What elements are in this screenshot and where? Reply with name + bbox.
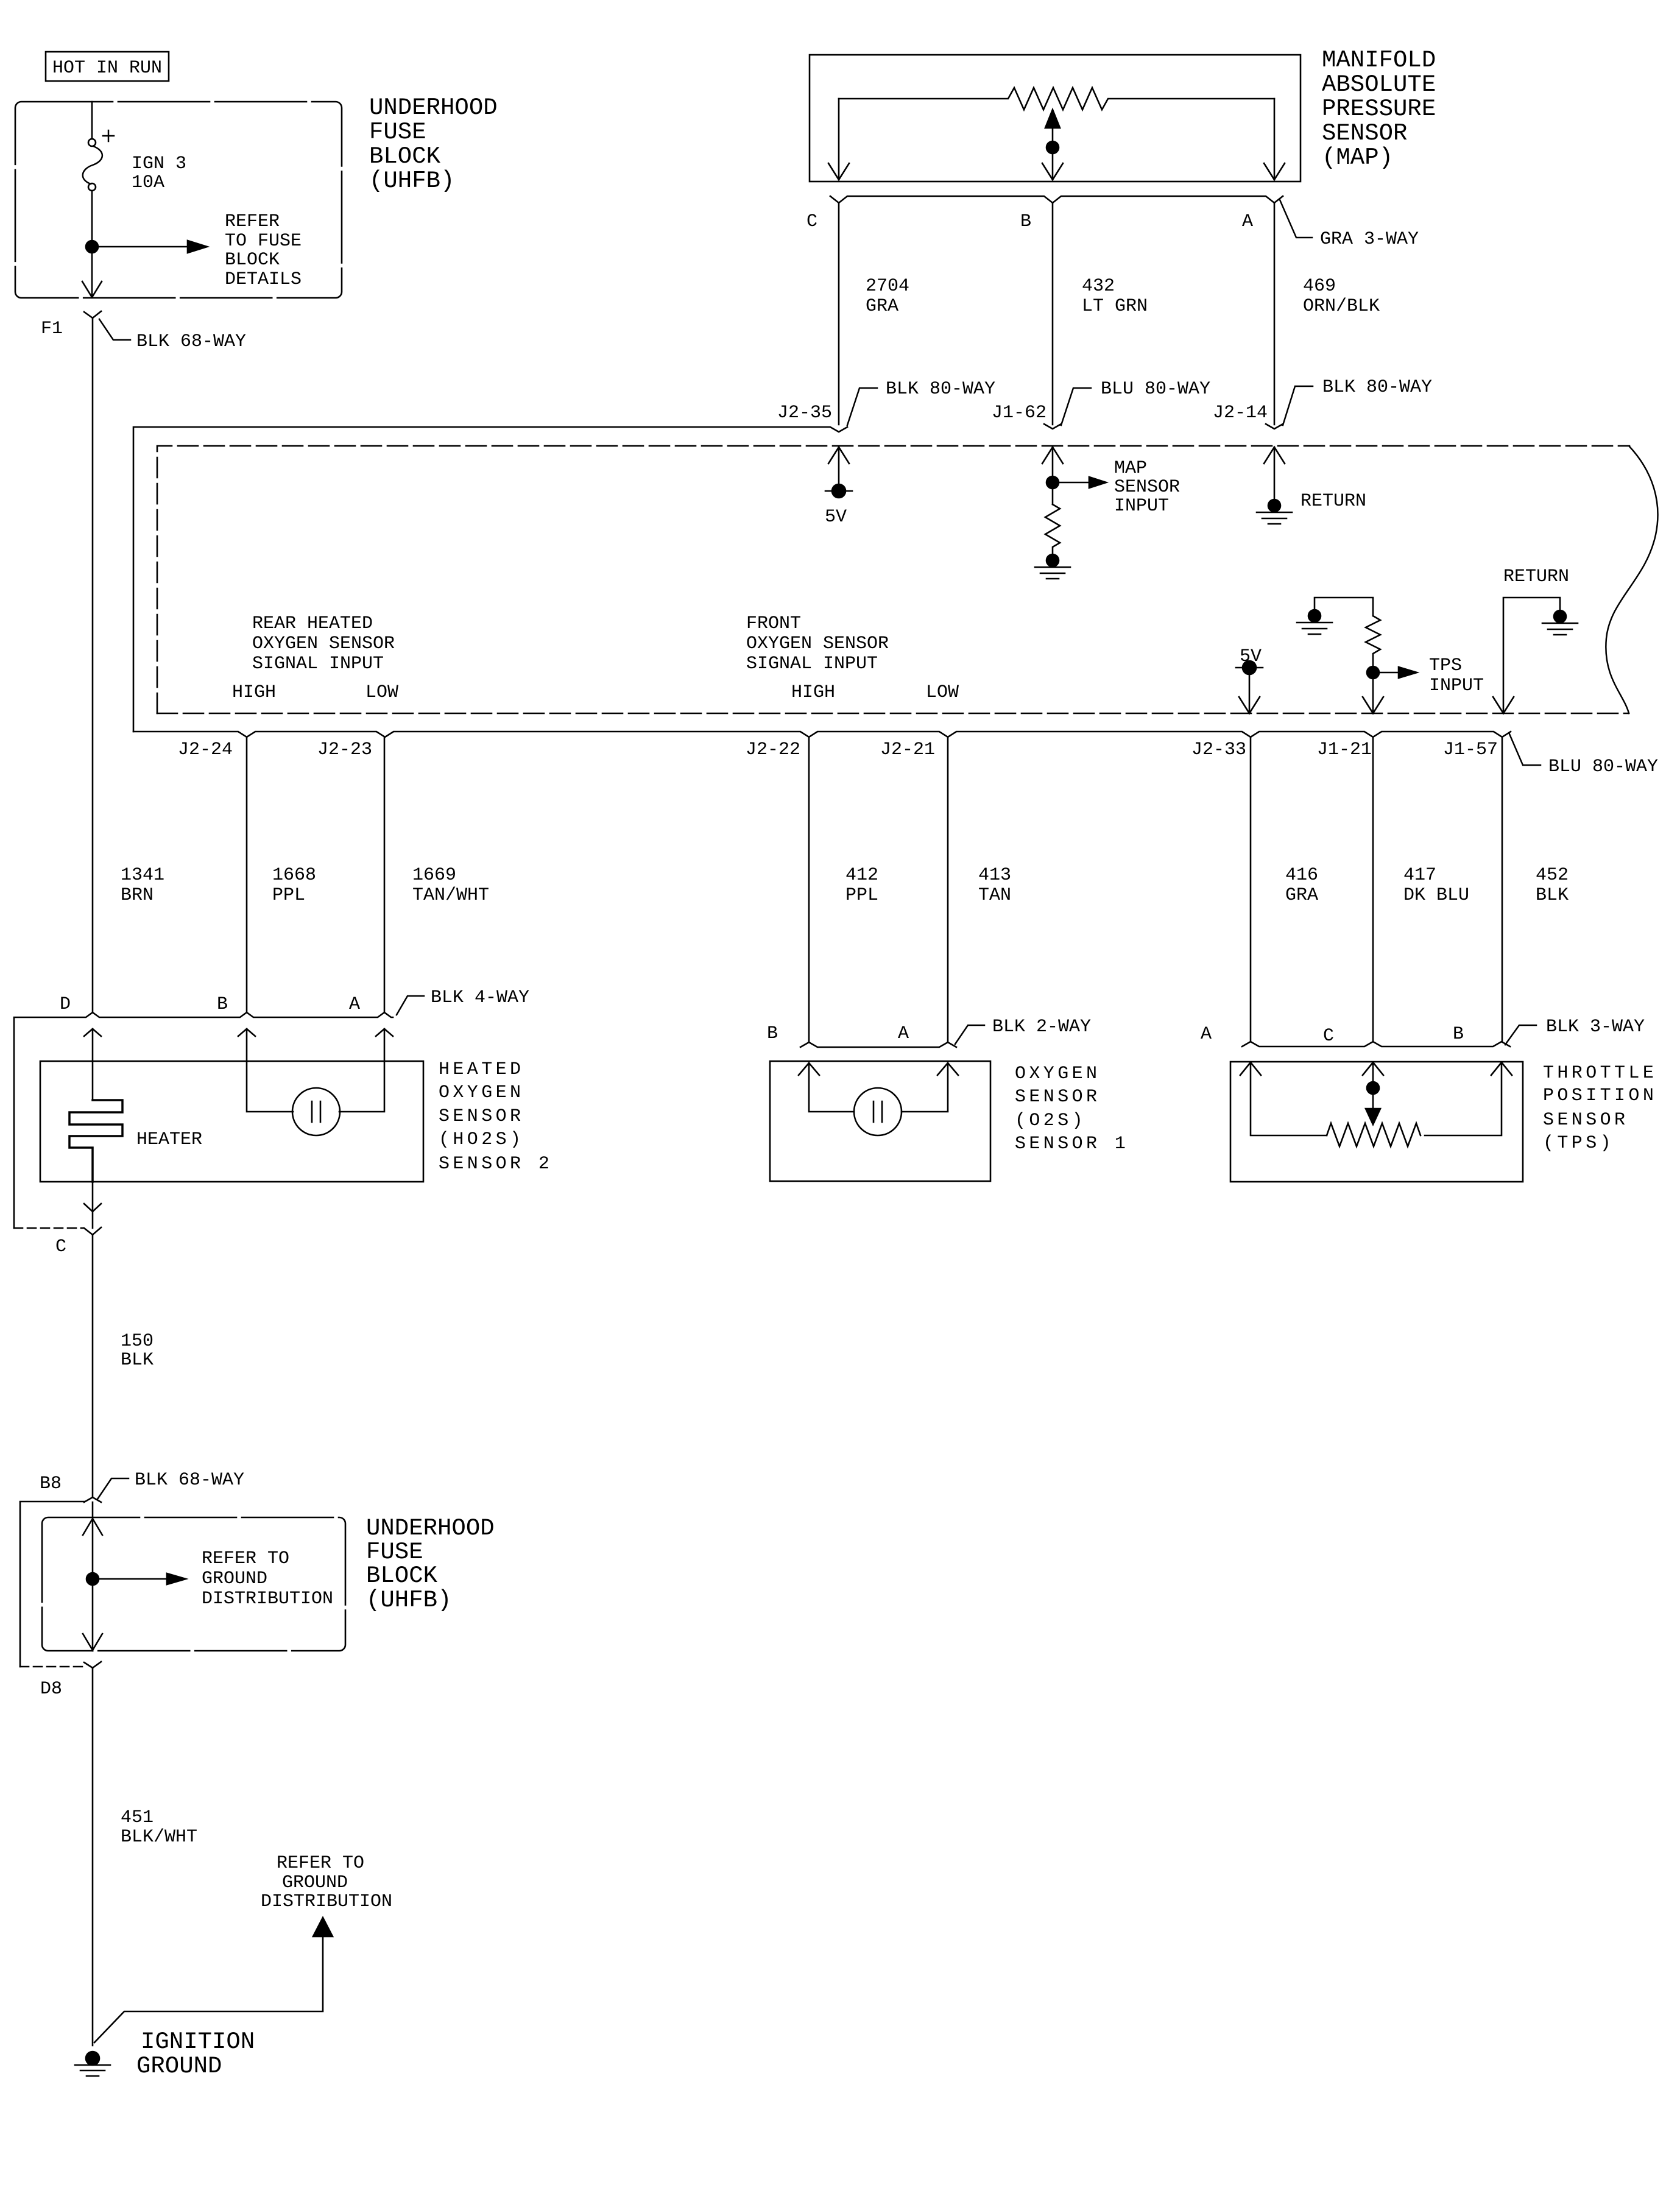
svg-text:POSITION: POSITION (1543, 1086, 1657, 1106)
svg-text:REAR HEATED: REAR HEATED (252, 613, 373, 634)
svg-text:1668: 1668 (272, 865, 316, 886)
svg-text:FUSE: FUSE (366, 1539, 423, 1566)
svg-text:BLK 2-WAY: BLK 2-WAY (992, 1017, 1091, 1037)
svg-text:SIGNAL INPUT: SIGNAL INPUT (252, 654, 384, 674)
svg-text:TO FUSE: TO FUSE (225, 231, 302, 252)
svg-text:(MAP): (MAP) (1322, 144, 1393, 171)
svg-text:FUSE: FUSE (369, 119, 426, 146)
svg-text:RETURN: RETURN (1301, 491, 1366, 512)
svg-text:F1: F1 (41, 319, 63, 339)
svg-text:IGNITION: IGNITION (141, 2028, 255, 2055)
svg-text:GROUND: GROUND (282, 1873, 348, 1893)
svg-text:B: B (217, 994, 228, 1015)
svg-text:(UHFB): (UHFB) (369, 168, 454, 194)
svg-text:OXYGEN SENSOR: OXYGEN SENSOR (746, 634, 889, 654)
svg-text:OXYGEN: OXYGEN (1015, 1064, 1100, 1084)
svg-text:THROTTLE: THROTTLE (1543, 1063, 1657, 1084)
svg-text:SENSOR: SENSOR (439, 1106, 524, 1127)
svg-text:FRONT: FRONT (746, 613, 801, 634)
svg-text:5V: 5V (1240, 646, 1262, 667)
svg-text:LOW: LOW (365, 682, 398, 703)
svg-text:413: 413 (978, 865, 1011, 886)
svg-text:TPS: TPS (1429, 655, 1462, 676)
svg-text:GROUND: GROUND (136, 2053, 222, 2080)
svg-text:BLOCK: BLOCK (369, 143, 441, 170)
svg-text:REFER TO: REFER TO (202, 1548, 289, 1569)
svg-text:J2-24: J2-24 (178, 740, 233, 760)
svg-text:(TPS): (TPS) (1543, 1133, 1614, 1154)
svg-text:BRN: BRN (121, 885, 154, 906)
svg-text:J2-14: J2-14 (1213, 403, 1268, 423)
svg-text:C: C (806, 211, 817, 232)
svg-text:416: 416 (1285, 865, 1318, 886)
svg-text:BLU 80-WAY: BLU 80-WAY (1101, 379, 1210, 400)
svg-text:J1-57: J1-57 (1443, 740, 1498, 760)
svg-text:HOT IN RUN: HOT IN RUN (52, 58, 162, 79)
svg-text:SENSOR: SENSOR (1543, 1110, 1628, 1131)
svg-text:BLK 3-WAY: BLK 3-WAY (1546, 1017, 1645, 1037)
svg-text:DISTRIBUTION: DISTRIBUTION (202, 1589, 333, 1609)
svg-text:B: B (767, 1023, 778, 1044)
svg-text:J2-22: J2-22 (746, 740, 800, 760)
svg-text:HEATER: HEATER (136, 1129, 202, 1150)
svg-text:SENSOR: SENSOR (1322, 120, 1407, 147)
svg-text:INPUT: INPUT (1114, 496, 1169, 517)
svg-text:BLOCK: BLOCK (366, 1562, 438, 1589)
svg-text:A: A (1201, 1024, 1212, 1045)
svg-text:UNDERHOOD: UNDERHOOD (366, 1515, 495, 1542)
svg-text:417: 417 (1403, 865, 1436, 886)
svg-text:PPL: PPL (272, 885, 305, 906)
svg-text:1669: 1669 (412, 865, 456, 886)
svg-text:PPL: PPL (845, 885, 878, 906)
svg-text:REFER: REFER (225, 211, 280, 232)
svg-text:451: 451 (121, 1807, 154, 1828)
svg-text:BLK 68-WAY: BLK 68-WAY (135, 1470, 244, 1491)
svg-text:412: 412 (845, 865, 878, 886)
svg-text:LOW: LOW (926, 682, 959, 703)
svg-text:B: B (1020, 211, 1031, 232)
svg-text:469: 469 (1303, 276, 1336, 297)
svg-text:J2-35: J2-35 (777, 403, 832, 423)
svg-text:SENSOR 2: SENSOR 2 (439, 1154, 552, 1174)
svg-text:B: B (1453, 1024, 1464, 1045)
svg-text:HEATED: HEATED (439, 1059, 524, 1080)
svg-text:UNDERHOOD: UNDERHOOD (369, 94, 498, 121)
svg-text:MAP: MAP (1114, 458, 1147, 479)
svg-text:A: A (1242, 211, 1253, 232)
svg-text:HIGH: HIGH (791, 682, 835, 703)
svg-text:TAN: TAN (978, 885, 1011, 906)
svg-text:A: A (349, 994, 360, 1015)
svg-text:BLK: BLK (1536, 885, 1569, 906)
svg-text:RETURN: RETURN (1503, 567, 1569, 587)
svg-text:A: A (898, 1023, 909, 1044)
svg-text:BLU 80-WAY: BLU 80-WAY (1548, 757, 1658, 777)
svg-text:432: 432 (1082, 276, 1115, 297)
svg-text:SIGNAL INPUT: SIGNAL INPUT (746, 654, 878, 674)
svg-text:D: D (60, 994, 71, 1015)
svg-text:ORN/BLK: ORN/BLK (1303, 296, 1380, 317)
svg-text:MANIFOLD: MANIFOLD (1322, 47, 1436, 74)
svg-text:OXYGEN SENSOR: OXYGEN SENSOR (252, 634, 395, 654)
svg-text:OXYGEN: OXYGEN (439, 1082, 524, 1103)
svg-text:DETAILS: DETAILS (225, 269, 302, 290)
svg-text:SENSOR: SENSOR (1015, 1087, 1100, 1107)
svg-text:C: C (1323, 1026, 1334, 1047)
svg-text:DK BLU: DK BLU (1403, 885, 1469, 906)
svg-text:J2-33: J2-33 (1191, 740, 1246, 760)
svg-text:ABSOLUTE: ABSOLUTE (1322, 71, 1436, 98)
svg-text:J1-62: J1-62 (992, 403, 1046, 423)
svg-text:IGN 3: IGN 3 (132, 154, 186, 174)
svg-text:BLK/WHT: BLK/WHT (121, 1827, 197, 1848)
svg-text:BLOCK: BLOCK (225, 250, 280, 270)
svg-text:5V: 5V (825, 507, 847, 528)
svg-text:TAN/WHT: TAN/WHT (412, 885, 489, 906)
svg-text:2704: 2704 (866, 276, 909, 297)
svg-text:(O2S): (O2S) (1015, 1110, 1086, 1131)
svg-text:SENSOR: SENSOR (1114, 477, 1180, 498)
svg-text:PRESSURE: PRESSURE (1322, 96, 1436, 122)
svg-text:GRA 3-WAY: GRA 3-WAY (1320, 229, 1419, 250)
svg-text:BLK: BLK (121, 1350, 154, 1371)
svg-text:BLK 68-WAY: BLK 68-WAY (136, 331, 246, 352)
svg-text:LT GRN: LT GRN (1082, 296, 1148, 317)
svg-text:B8: B8 (40, 1474, 62, 1494)
svg-text:D8: D8 (40, 1679, 62, 1700)
svg-text:(HO2S): (HO2S) (439, 1129, 524, 1150)
svg-text:(UHFB): (UHFB) (366, 1587, 451, 1614)
svg-text:DISTRIBUTION: DISTRIBUTION (261, 1891, 392, 1912)
svg-text:SENSOR 1: SENSOR 1 (1015, 1134, 1129, 1154)
svg-text:C: C (55, 1237, 66, 1257)
svg-text:J2-23: J2-23 (317, 740, 372, 760)
svg-text:10A: 10A (132, 172, 164, 193)
svg-text:J1-21: J1-21 (1317, 740, 1372, 760)
svg-text:452: 452 (1536, 865, 1569, 886)
svg-text:REFER TO: REFER TO (277, 1853, 364, 1874)
svg-text:GROUND: GROUND (202, 1569, 267, 1589)
svg-text:BLK 80-WAY: BLK 80-WAY (886, 379, 995, 400)
svg-text:BLK 80-WAY: BLK 80-WAY (1322, 377, 1432, 398)
svg-text:150: 150 (121, 1331, 154, 1352)
svg-text:J2-21: J2-21 (880, 740, 935, 760)
svg-text:INPUT: INPUT (1429, 676, 1484, 696)
svg-text:HIGH: HIGH (232, 682, 276, 703)
svg-text:GRA: GRA (1285, 885, 1318, 906)
svg-text:GRA: GRA (866, 296, 898, 317)
svg-text:BLK 4-WAY: BLK 4-WAY (431, 987, 529, 1008)
svg-text:1341: 1341 (121, 865, 164, 886)
